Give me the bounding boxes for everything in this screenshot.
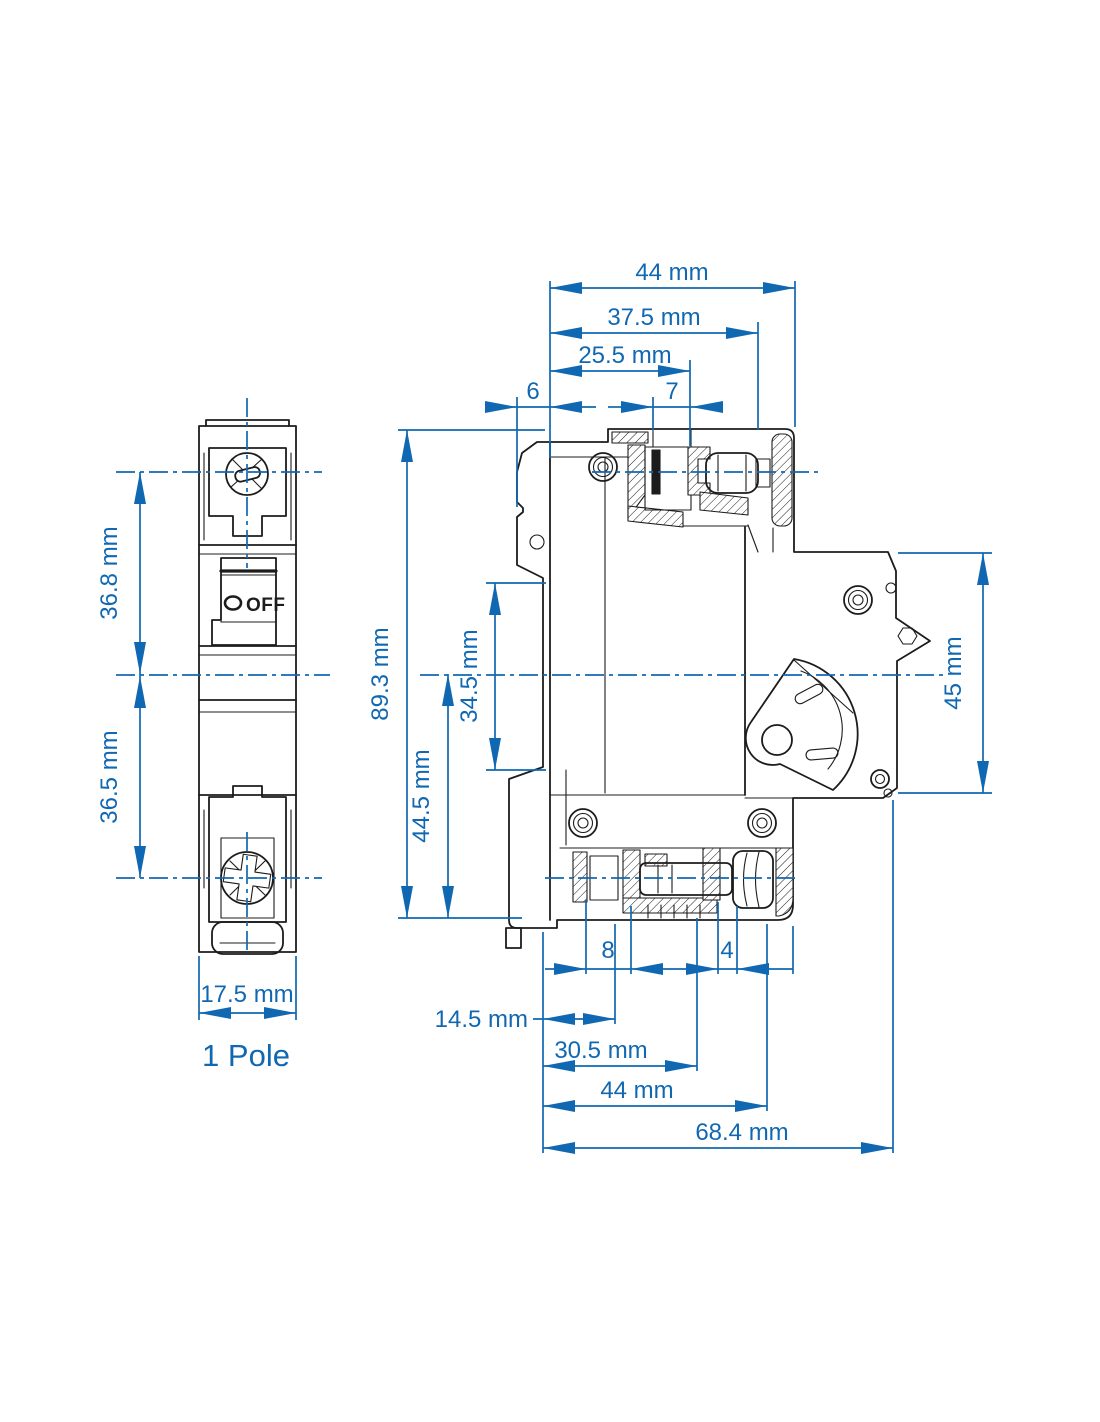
dim-label-din-channel: 34.5 mm [456,629,483,722]
off-label: OFF [246,595,286,616]
dim-label-upper-height: 36.8 mm [96,526,123,619]
din-foot-tab [506,928,521,948]
terminal-screw-top [706,453,758,493]
technical-drawing: OFF [0,0,1100,1422]
dim-label-top-inner: 25.5 mm [578,342,671,369]
screw-icon [871,770,889,788]
dim-label-top-mid: 37.5 mm [607,304,700,331]
dim-label-back-height: 45 mm [940,636,967,709]
screw-icon [569,809,597,837]
dim-label-bottom-68-4: 68.4 mm [695,1119,788,1146]
side-view [506,429,930,948]
dim-label-lower-half: 44.5 mm [408,749,435,842]
dim-label-hole-width: 7 [665,378,678,405]
dim-label-bottom-44: 44 mm [600,1077,673,1104]
dim-label-bottom-30-5: 30.5 mm [554,1037,647,1064]
off-indicator-icon [225,597,241,610]
drawing-page: OFF [0,0,1100,1422]
front-height-dimension [134,472,146,878]
pin-hole [886,583,896,593]
dimensions [116,281,992,1154]
side-top-terminal [612,430,792,527]
dim-label-height-total: 89.3 mm [367,627,394,720]
side-bottom-terminal [560,848,793,918]
screw-icon [748,809,776,837]
dim-label-front-step: 6 [526,378,539,405]
screw-icon [589,453,617,481]
screw-icon [844,586,872,614]
dim-label-front-width: 17.5 mm [200,981,293,1008]
pin-hole [530,535,544,549]
dim-label-bottom-4: 4 [720,937,733,964]
dim-label-lower-height: 36.5 mm [96,730,123,823]
dim-label-bottom-14-5: 14.5 mm [435,1006,528,1033]
pole-caption: 1 Pole [202,1038,290,1073]
rotary-mechanism [746,659,858,790]
dim-label-bottom-8: 8 [601,937,614,964]
dim-label-top-total: 44 mm [635,259,708,286]
front-switch: OFF [212,558,286,645]
